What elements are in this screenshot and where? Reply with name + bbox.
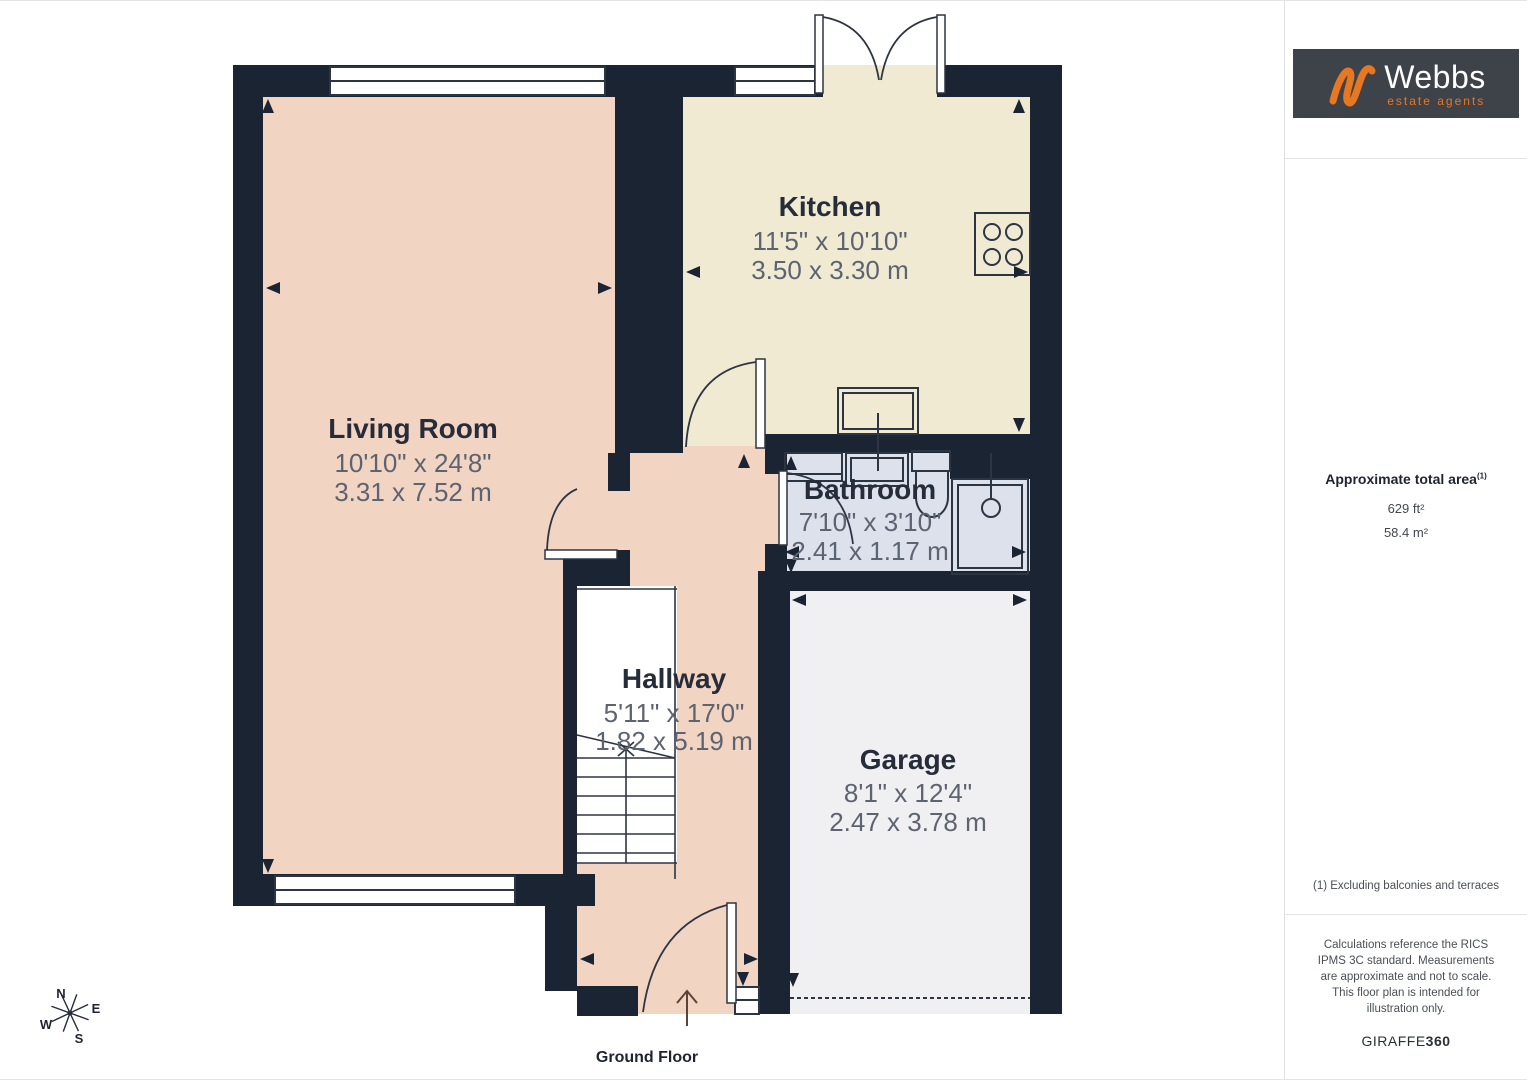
bathroom-label: Bathroom [804,474,936,505]
footnote-section: (1) Excluding balconies and terraces [1285,857,1527,915]
sidebar: Webbs estate agents Approximate total ar… [1284,1,1527,1079]
compass-rose: N E W S [40,986,101,1046]
kitchen-label: Kitchen [779,191,882,222]
french-door-right-leaf [937,15,945,93]
area-section: Approximate total area(1) 629 ft² 58.4 m… [1285,159,1527,857]
french-door-left-leaf [815,15,823,93]
compass-north: N [56,986,65,1001]
hallway-dim-metric: 1.82 x 5.19 m [595,726,753,756]
floor-label: Ground Floor [596,1049,698,1066]
kitchen-dim-metric: 3.50 x 3.30 m [751,255,909,285]
area-footnote-marker: (1) [1477,471,1487,480]
living-room-dim-imperial: 10'10" x 24'8" [334,448,491,478]
kitchen-dim-imperial: 11'5" x 10'10" [752,226,907,256]
bathroom-dim-metric: 2.41 x 1.17 m [791,536,949,566]
garage-dim-imperial: 8'1" x 12'4" [844,778,972,808]
garage-dim-metric: 2.47 x 3.78 m [829,807,987,837]
kitchen-top-window [735,67,815,95]
garage-label: Garage [860,744,957,775]
webbs-logo-mark [1326,55,1378,113]
compass-east: E [92,1001,101,1016]
logo-brand-text: Webbs [1384,61,1486,93]
disclaimer-text: Calculations reference the RICS IPMS 3C … [1309,937,1503,1017]
area-imperial: 629 ft² [1388,497,1425,521]
area-metric: 58.4 m² [1384,521,1428,545]
hallway-label: Hallway [622,663,727,694]
living-room-top-window [330,67,605,95]
entry-side-window [735,987,759,1014]
living-room-bottom-window [275,876,515,904]
entry-door-leaf [727,903,736,1003]
area-title: Approximate total area(1) [1325,471,1487,487]
bathroom-door-leaf [779,471,787,545]
hallway-dim-imperial: 5'11" x 17'0" [604,698,745,728]
webbs-logo: Webbs estate agents [1293,49,1519,118]
kitchen-door-leaf [756,359,765,448]
logo-tagline-text: estate agents [1384,95,1486,107]
living-room-door-leaf [545,550,617,559]
compass-south: S [75,1031,84,1046]
disclaimer-section: Calculations reference the RICS IPMS 3C … [1285,915,1527,1079]
living-room-label: Living Room [328,413,498,444]
floorplan-page: Living Room 10'10" x 24'8" 3.31 x 7.52 m… [0,0,1527,1080]
floor-plan: Living Room 10'10" x 24'8" 3.31 x 7.52 m… [0,1,1284,1079]
bathroom-dim-imperial: 7'10" x 3'10" [799,507,942,537]
giraffe360-credit: GIRAFFE360 [1309,1033,1503,1049]
logo-section: Webbs estate agents [1285,1,1527,159]
compass-west: W [40,1017,53,1032]
living-room-dim-metric: 3.31 x 7.52 m [334,477,492,507]
